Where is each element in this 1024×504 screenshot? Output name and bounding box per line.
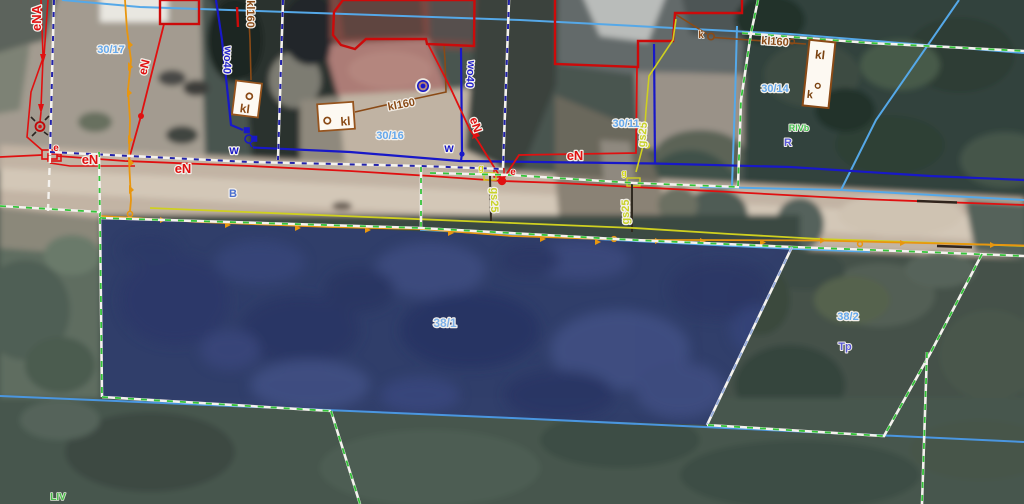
svg-text:LIV: LIV xyxy=(50,492,66,503)
svg-text:kl: kl xyxy=(340,114,351,129)
svg-text:eNA: eNA xyxy=(29,4,44,31)
svg-text:e: e xyxy=(510,167,516,178)
svg-text:eN: eN xyxy=(175,161,192,176)
svg-text:k: k xyxy=(698,30,704,41)
svg-text:eN: eN xyxy=(82,152,99,167)
svg-text:g: g xyxy=(621,168,627,178)
svg-text:eN: eN xyxy=(567,148,584,163)
svg-text:kl160: kl160 xyxy=(244,0,256,28)
svg-text:B: B xyxy=(229,188,237,200)
svg-text:kl: kl xyxy=(239,101,251,116)
svg-text:wo40: wo40 xyxy=(220,45,233,74)
svg-text:kl: kl xyxy=(814,47,825,62)
svg-text:g: g xyxy=(478,163,484,173)
svg-text:kl160: kl160 xyxy=(761,35,789,49)
svg-text:30/11: 30/11 xyxy=(613,118,640,130)
svg-text:w: w xyxy=(228,143,239,157)
svg-text:38/2: 38/2 xyxy=(837,311,858,323)
svg-text:30/14: 30/14 xyxy=(761,83,789,95)
svg-text:30/16: 30/16 xyxy=(376,130,404,142)
svg-text:gs25: gs25 xyxy=(488,187,500,212)
svg-text:R: R xyxy=(784,137,792,149)
svg-text:w: w xyxy=(443,141,454,155)
svg-text:wo40: wo40 xyxy=(463,59,477,88)
svg-text:RIVb: RIVb xyxy=(789,123,810,133)
svg-text:gs25: gs25 xyxy=(620,199,632,224)
svg-text:30/17: 30/17 xyxy=(97,44,125,56)
svg-text:Tp: Tp xyxy=(838,341,852,353)
svg-text:e: e xyxy=(53,143,59,154)
svg-text:38/1: 38/1 xyxy=(433,316,457,330)
